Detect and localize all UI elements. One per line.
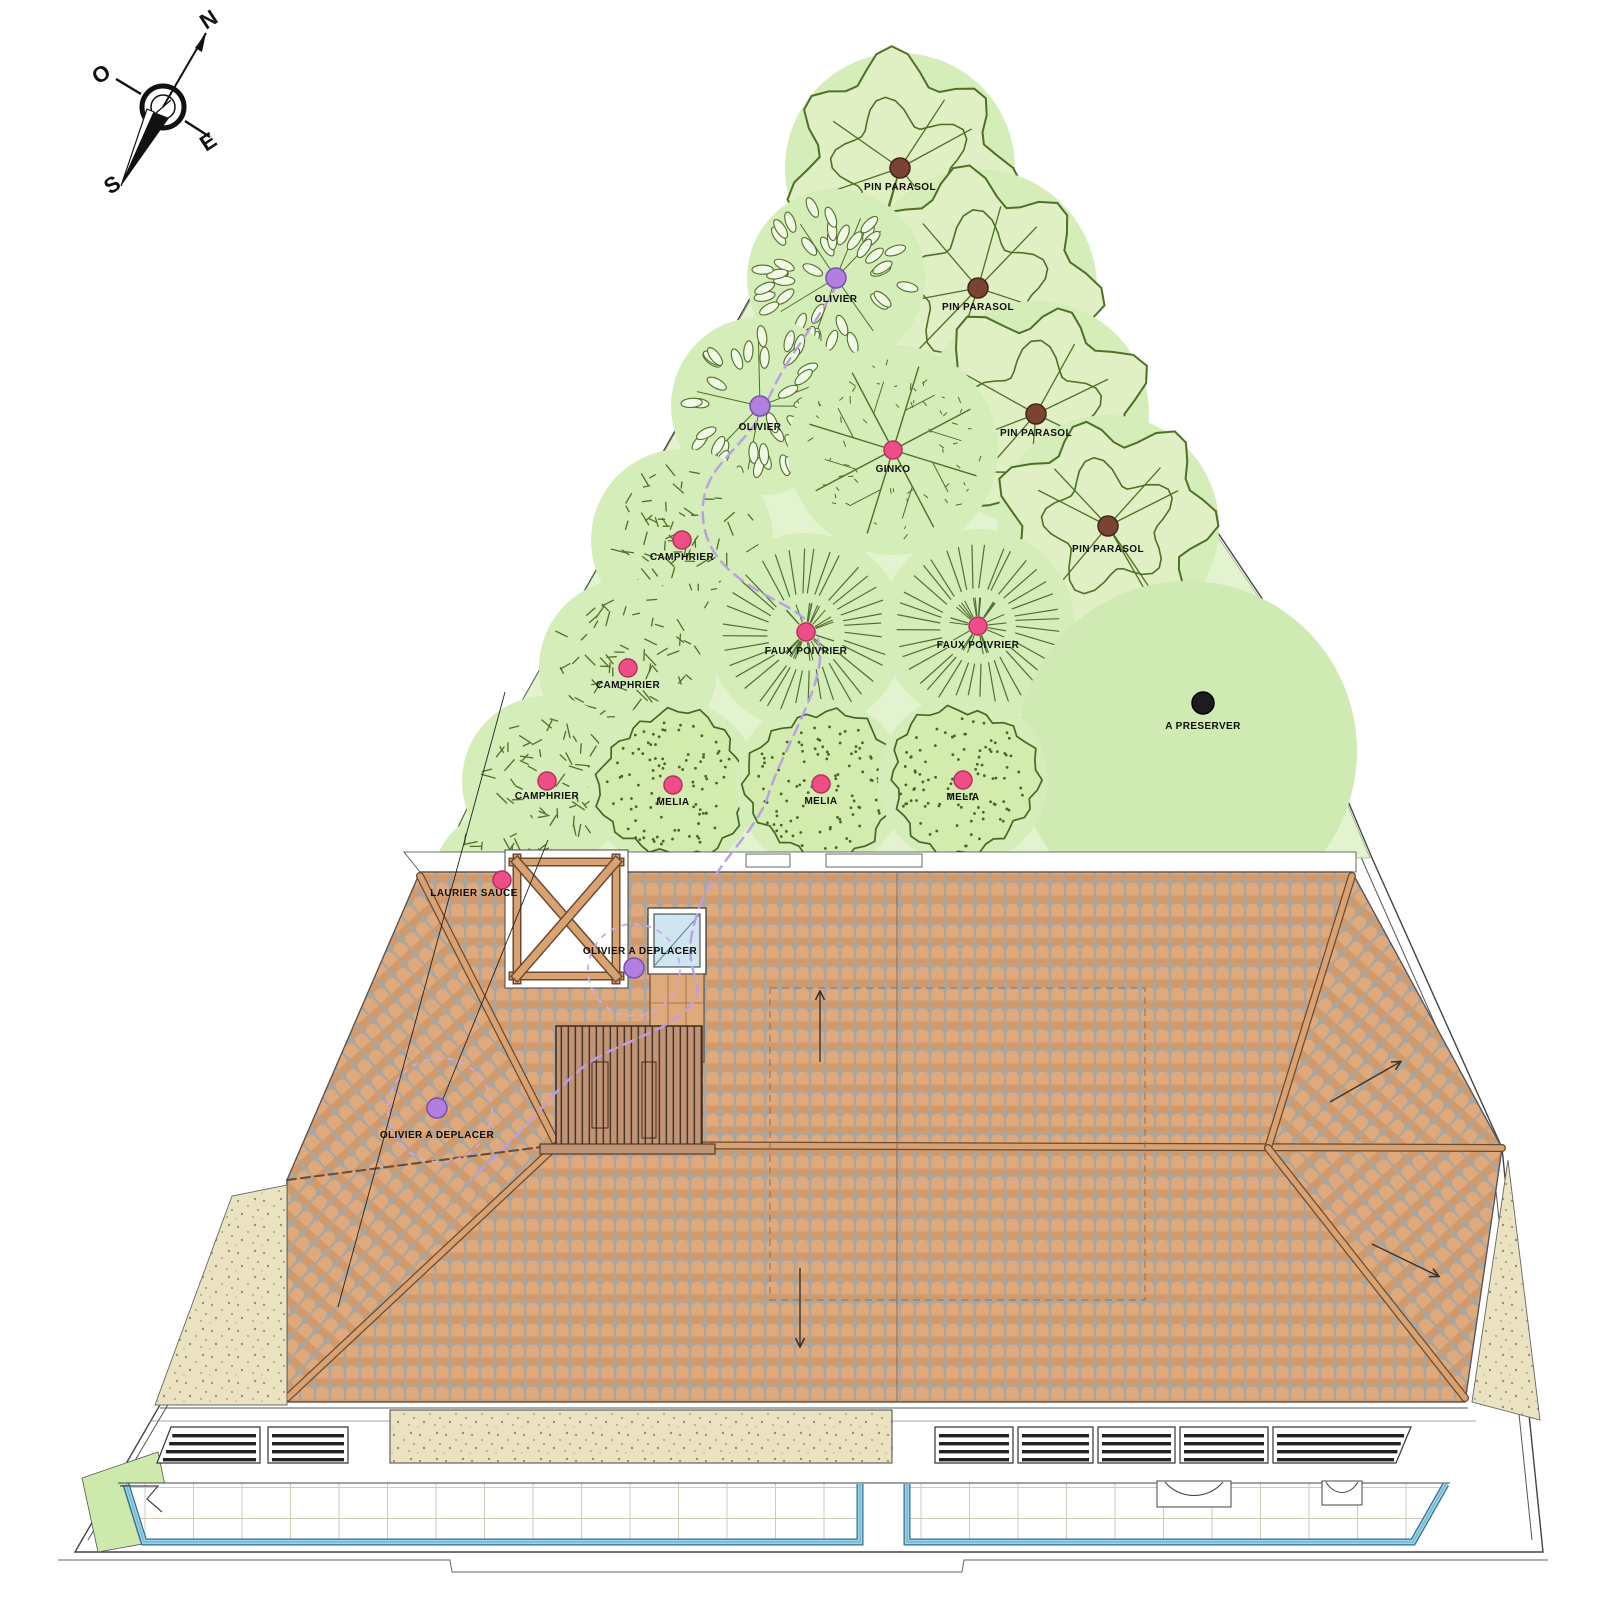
site-outer-bottom-line: [58, 1560, 1548, 1572]
building-roof: [287, 852, 1502, 1402]
tree-trunk-dot: [812, 775, 830, 793]
pool-left: [122, 1483, 862, 1544]
tree-label: A PRESERVER: [1165, 721, 1241, 732]
compass-label-east: E: [195, 127, 221, 156]
tree-trunk-dot: [619, 659, 637, 677]
tree-label: CAMPHRIER: [596, 680, 661, 691]
tree-trunk-dot: [493, 871, 511, 889]
tree-trunk-dot: [538, 772, 556, 790]
tree-label: MELIA: [946, 792, 979, 803]
compass-rose: N O E S: [87, 5, 222, 200]
tree-label: GINKO: [876, 464, 911, 475]
tree-trunk-dot: [673, 531, 691, 549]
compass-label-north: N: [195, 5, 222, 35]
pool-step-2: [1322, 1481, 1362, 1505]
tree-trunk-dot: [884, 441, 902, 459]
tree-trunk-dot: [954, 771, 972, 789]
louver-panel: [1180, 1427, 1268, 1463]
pool-area: [118, 1481, 1450, 1544]
louver-panel: [1098, 1427, 1175, 1463]
louver-panel: [268, 1427, 348, 1463]
wood-deck: [540, 1026, 715, 1154]
landscape-site-plan: PIN PARASOLPIN PARASOLOLIVIEROLIVIERPIN …: [0, 0, 1600, 1600]
tree-trunk-dot: [890, 158, 910, 178]
tree-label: LAURIER SAUCE: [430, 888, 517, 899]
tree-trunk-dot: [969, 617, 987, 635]
sand-strip-middle: [390, 1410, 892, 1463]
roof-vent-1: [746, 854, 790, 867]
tree-label: PIN PARASOL: [942, 302, 1014, 313]
tree-label: PIN PARASOL: [1072, 544, 1144, 555]
tree-label: PIN PARASOL: [1000, 428, 1072, 439]
tree-trunk-dot: [1192, 692, 1214, 714]
tree-trunk-dot: [826, 268, 846, 288]
tree-trunk-dot: [664, 776, 682, 794]
tree-trunk-dot: [797, 623, 815, 641]
tree-trunk-dot: [968, 278, 988, 298]
pergola-structure: [505, 850, 628, 988]
deck-slats: [556, 1026, 702, 1148]
louver-panel: [1273, 1427, 1411, 1463]
tree-trunk-dot: [1098, 516, 1118, 536]
compass-south-needle-white: [121, 109, 154, 186]
sand-wedge-left: [155, 1185, 287, 1405]
louver-panel: [157, 1427, 260, 1463]
tree-label: FAUX POIVRIER: [765, 646, 848, 657]
tree-trunk-dot: [624, 958, 644, 978]
compass-west-needle: [116, 79, 141, 94]
compass-label-west: O: [87, 59, 115, 89]
louver-panel: [1018, 1427, 1093, 1463]
tree-label: PIN PARASOL: [864, 182, 936, 193]
pool-step-1: [1157, 1481, 1231, 1507]
tree-label: FAUX POIVRIER: [937, 640, 1020, 651]
tree-trunk-dot: [1026, 404, 1046, 424]
tree-trunk-dot: [750, 396, 770, 416]
tree-label: CAMPHRIER: [650, 552, 715, 563]
tree-trunk-dot: [427, 1098, 447, 1118]
tree-label: OLIVIER: [739, 422, 782, 433]
louver-panel: [935, 1427, 1013, 1463]
tree-label: OLIVIER A DEPLACER: [380, 1130, 495, 1141]
tree-label: MELIA: [656, 797, 689, 808]
tree-label: OLIVIER A DEPLACER: [583, 946, 698, 957]
roof-vent-2: [826, 854, 922, 867]
deck-base-beam: [540, 1144, 715, 1154]
tree-label: CAMPHRIER: [515, 791, 580, 802]
tree-label: OLIVIER: [815, 294, 858, 305]
tree-label: MELIA: [804, 796, 837, 807]
site-plan-page: PIN PARASOLPIN PARASOLOLIVIEROLIVIERPIN …: [0, 0, 1600, 1600]
